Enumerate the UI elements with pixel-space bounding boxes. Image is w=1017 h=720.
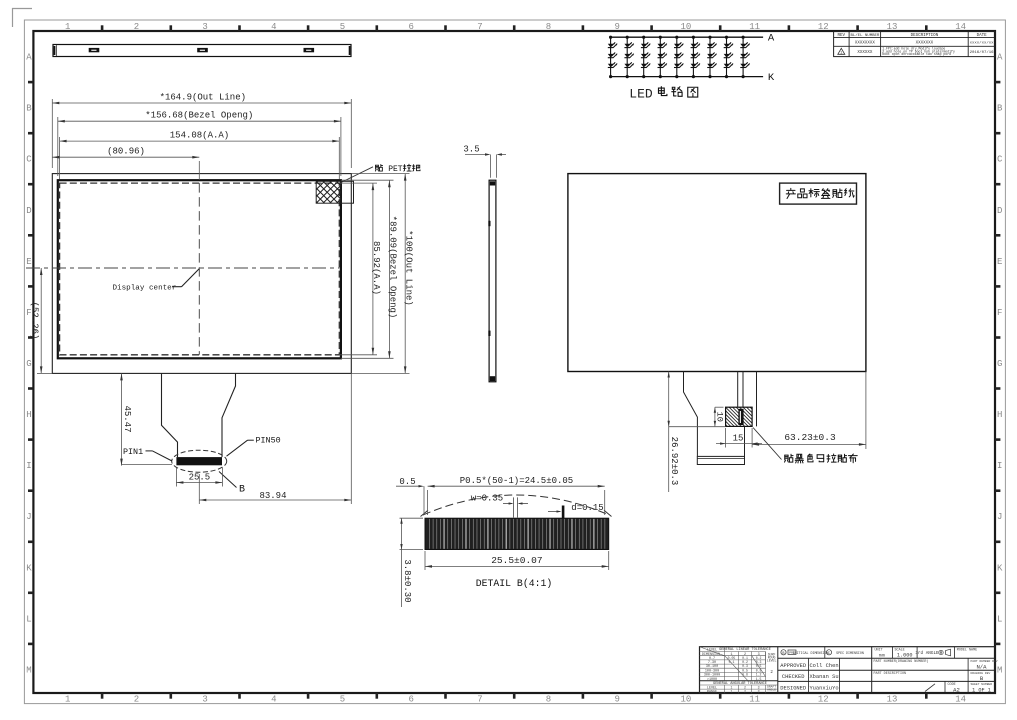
svg-text:L: L xyxy=(997,614,1002,624)
svg-text:3: 3 xyxy=(202,22,207,32)
svg-text:K: K xyxy=(26,563,32,573)
svg-text:10: 10 xyxy=(680,695,691,705)
svg-text:SPEC DIMENSION: SPEC DIMENSION xyxy=(836,651,864,655)
svg-text:XXXXXX: XXXXXX xyxy=(857,51,873,55)
svg-text:MODEL NAME: MODEL NAME xyxy=(957,649,977,653)
svg-text:C: C xyxy=(828,652,830,656)
svg-text:I: I xyxy=(997,461,1002,471)
svg-text:K: K xyxy=(997,563,1003,573)
svg-text:D: D xyxy=(26,206,31,216)
svg-text:1: 1 xyxy=(65,695,70,705)
svg-text:11: 11 xyxy=(749,695,760,705)
svg-text:F: F xyxy=(997,308,1002,318)
svg-text:A: A xyxy=(997,53,1003,63)
svg-text:LEVEL: LEVEL xyxy=(767,659,777,663)
svg-text:M: M xyxy=(26,666,31,676)
svg-text:xxxx/xx/xx: xxxx/xx/xx xyxy=(970,41,995,46)
svg-text:83.94: 83.94 xyxy=(259,491,286,501)
svg-text:XXXXXXX: XXXXXXX xyxy=(916,42,934,46)
svg-text:C: C xyxy=(997,155,1003,165)
svg-text:2: 2 xyxy=(134,695,139,705)
svg-text:M: M xyxy=(997,666,1002,676)
svg-text:1.5: 1.5 xyxy=(756,677,762,681)
svg-text:1: 1 xyxy=(65,22,70,32)
svg-text:REV: REV xyxy=(838,34,846,38)
svg-text:2: 2 xyxy=(744,689,746,693)
svg-text:9: 9 xyxy=(614,22,619,32)
svg-text:DESIGNED: DESIGNED xyxy=(780,686,806,692)
svg-text:(52.26): (52.26) xyxy=(30,302,40,340)
svg-text:13: 13 xyxy=(887,22,898,32)
svg-text:8: 8 xyxy=(546,22,551,32)
svg-text:ANGLE: ANGLE xyxy=(767,688,776,691)
svg-text:11: 11 xyxy=(749,22,760,32)
svg-text:APPROVED: APPROVED xyxy=(780,663,806,669)
svg-text:4: 4 xyxy=(271,695,276,705)
svg-text:63.23±0.3: 63.23±0.3 xyxy=(784,432,836,443)
svg-text:YuanxiuYo: YuanxiuYo xyxy=(809,686,838,692)
svg-text:H: H xyxy=(997,410,1002,420)
svg-text:*164.9(Out Line): *164.9(Out Line) xyxy=(160,93,246,103)
svg-text:12: 12 xyxy=(818,695,829,705)
svg-text:6: 6 xyxy=(408,695,413,705)
svg-text:B: B xyxy=(997,104,1003,114)
svg-text:45.47: 45.47 xyxy=(122,405,132,432)
svg-text:E: E xyxy=(26,257,31,267)
svg-text:SHEET NUMBER: SHEET NUMBER xyxy=(971,683,993,686)
svg-text:J: J xyxy=(997,512,1002,522)
svg-text:XXXXXXXX: XXXXXXXX xyxy=(855,42,876,46)
svg-text:E: E xyxy=(997,257,1002,267)
svg-text:Coll Chen: Coll Chen xyxy=(809,663,838,669)
svg-text:I: I xyxy=(26,461,31,471)
svg-text:0.5: 0.5 xyxy=(399,477,415,487)
svg-text:PART NUMBER REV: PART NUMBER REV xyxy=(971,660,998,663)
svg-text:2: 2 xyxy=(134,22,139,32)
svg-text:w=0.35: w=0.35 xyxy=(471,493,503,503)
svg-text:*156.68(Bezel Openg): *156.68(Bezel Openg) xyxy=(145,111,253,121)
svg-text:PET: PET xyxy=(388,165,403,174)
svg-text:3.8±0.30: 3.8±0.30 xyxy=(402,559,412,602)
svg-text:RANGE: RANGE xyxy=(707,690,717,694)
svg-text:3rd ANGLE: 3rd ANGLE xyxy=(915,651,939,656)
svg-text:13: 13 xyxy=(887,695,898,705)
svg-text:A2: A2 xyxy=(953,687,960,694)
svg-text:A: A xyxy=(768,33,775,45)
svg-text:PIN1: PIN1 xyxy=(123,447,143,457)
svg-text:(80.96): (80.96) xyxy=(107,147,145,157)
svg-text:5: 5 xyxy=(340,22,345,32)
svg-text:0.8: 0.8 xyxy=(742,673,748,677)
svg-text:14: 14 xyxy=(955,695,966,705)
svg-text:B: B xyxy=(239,485,245,496)
svg-text:>1000: >1000 xyxy=(707,677,717,682)
svg-text:K: K xyxy=(768,72,775,84)
svg-text:DETAIL B(4:1): DETAIL B(4:1) xyxy=(476,578,552,589)
svg-text:9: 9 xyxy=(614,695,619,705)
svg-text:*100(Out Line): *100(Out Line) xyxy=(404,230,414,306)
svg-text:UNIT: UNIT xyxy=(875,649,883,653)
svg-text:10: 10 xyxy=(680,22,691,32)
svg-text:85.92(A.A): 85.92(A.A) xyxy=(371,241,381,295)
svg-text:Display center: Display center xyxy=(113,284,177,292)
svg-text:14: 14 xyxy=(955,22,966,32)
svg-text:BL/EL NUMBER: BL/EL NUMBER xyxy=(850,33,879,38)
svg-text:Xbanan Su: Xbanan Su xyxy=(809,674,838,680)
svg-text:L: L xyxy=(26,614,31,624)
svg-text:10: 10 xyxy=(715,412,725,422)
svg-text:B: B xyxy=(26,104,32,114)
svg-text:15: 15 xyxy=(733,433,744,443)
svg-text:A: A xyxy=(26,53,32,63)
svg-text:PART DESCRIPTION: PART DESCRIPTION xyxy=(874,672,907,676)
svg-text:3: 3 xyxy=(202,695,207,705)
svg-text:GENERAL LINEAR TOLERANCE: GENERAL LINEAR TOLERANCE xyxy=(719,648,771,652)
svg-text:D: D xyxy=(997,206,1002,216)
svg-text:LED: LED xyxy=(629,87,653,102)
svg-text:G: G xyxy=(997,359,1002,369)
svg-text:DATE: DATE xyxy=(977,34,988,38)
svg-text:5: 5 xyxy=(340,695,345,705)
svg-text:H: H xyxy=(26,410,31,420)
svg-text:25.5±0.07: 25.5±0.07 xyxy=(491,555,542,566)
svg-text:*89.09(Bezel Openg): *89.09(Bezel Openg) xyxy=(388,216,398,319)
svg-text:N/A: N/A xyxy=(976,664,987,671)
svg-text:7: 7 xyxy=(477,22,482,32)
svg-text:mm: mm xyxy=(879,654,886,659)
svg-text:G: G xyxy=(26,359,31,369)
svg-text:d=0.15: d=0.15 xyxy=(571,503,603,513)
svg-text:DESCRIPTION: DESCRIPTION xyxy=(911,34,939,38)
svg-text:3: 3 xyxy=(758,689,760,693)
svg-text:C: C xyxy=(26,155,32,165)
svg-text:7: 7 xyxy=(477,695,482,705)
svg-text:1.000: 1.000 xyxy=(897,653,913,659)
svg-text:P0.5*(50-1)=24.5±0.05: P0.5*(50-1)=24.5±0.05 xyxy=(460,476,573,486)
svg-text:CHECKED: CHECKED xyxy=(782,674,805,680)
svg-text:154.08(A.A): 154.08(A.A) xyxy=(170,131,229,141)
svg-text:boot opcn dhrcacokable two sna: boot opcn dhrcacokable two snap pord xyxy=(882,52,951,56)
svg-text:PIN50: PIN50 xyxy=(256,435,281,445)
svg-text:0.1: 0.1 xyxy=(729,660,735,664)
svg-text:26.92±0.3: 26.92±0.3 xyxy=(669,437,679,486)
svg-text:4: 4 xyxy=(271,22,276,32)
svg-text:PART NUMBER(DRAWING NUMBER): PART NUMBER(DRAWING NUMBER) xyxy=(874,659,929,664)
svg-text:8: 8 xyxy=(546,695,551,705)
svg-text:6: 6 xyxy=(408,22,413,32)
svg-text:2016/07/16: 2016/07/16 xyxy=(970,50,995,55)
svg-text:1: 1 xyxy=(731,689,733,693)
svg-text:CRITICAL DIMENSION: CRITICAL DIMENSION xyxy=(793,651,829,655)
svg-text:1 OF 1: 1 OF 1 xyxy=(972,688,991,694)
svg-text:3.5: 3.5 xyxy=(463,145,479,155)
svg-text:J: J xyxy=(26,512,31,522)
svg-text:12: 12 xyxy=(818,22,829,32)
